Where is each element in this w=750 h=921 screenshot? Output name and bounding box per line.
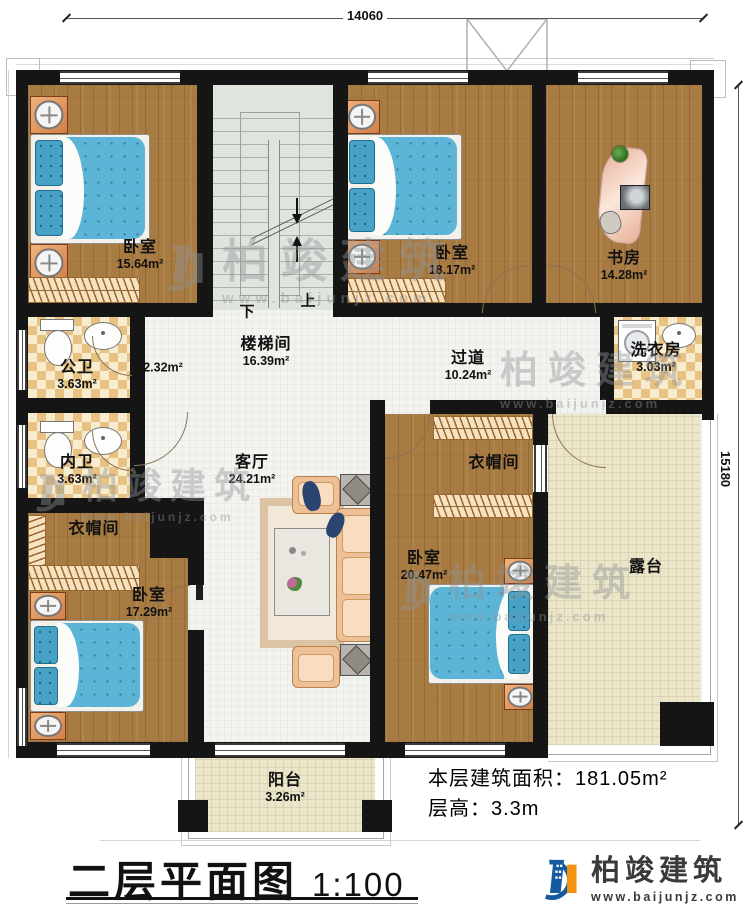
brand-name: 柏竣建筑 (591, 857, 739, 886)
lamp (34, 595, 62, 617)
sliding-door (215, 743, 345, 757)
room-name: 阳台 (265, 771, 305, 790)
lamp (348, 104, 376, 130)
room-label-lobby: 2.32m² (143, 361, 183, 376)
room-name: 客厅 (229, 453, 276, 472)
title-underline-thin (66, 903, 418, 904)
room-label-bedroom-bl: 卧室 17.29m² (126, 586, 173, 620)
wall (16, 398, 145, 413)
dimension-line-right (738, 85, 739, 825)
bed-mattress (430, 587, 504, 679)
room-name: 卧室 (126, 586, 173, 605)
pillow (508, 634, 530, 674)
lamp (34, 715, 62, 737)
wardrobe (433, 494, 533, 518)
wall (16, 303, 213, 317)
room-name: 露台 (629, 557, 663, 576)
decor (301, 551, 306, 556)
wall (188, 513, 204, 585)
cushion (298, 654, 334, 682)
floor-area-label: 本层建筑面积： (428, 768, 575, 790)
brand-logo-icon (536, 854, 584, 906)
room-area: 14.28m² (601, 268, 648, 283)
armchair (292, 646, 340, 688)
room-name: 卧室 (117, 238, 164, 257)
side-table (340, 474, 374, 506)
wall (702, 85, 714, 420)
room-area: 3.26m² (265, 790, 305, 805)
window (17, 330, 27, 390)
wardrobe (342, 278, 446, 303)
nightstand (504, 684, 536, 710)
room-label-bedroom-tm: 卧室 18.17m² (429, 244, 476, 278)
floor-height-label: 层高： (428, 798, 491, 820)
room-name: 卧室 (401, 549, 448, 568)
room-name: 内卫 (57, 453, 97, 472)
pillow (35, 140, 63, 186)
floor-height-text: 层高：3.3m (428, 792, 539, 821)
nightstand (30, 712, 66, 740)
floor-area-value: 181.05m² (575, 768, 668, 790)
room-name: 过道 (445, 349, 492, 368)
window (405, 743, 505, 757)
wardrobe (433, 416, 533, 440)
stair-arrow (296, 246, 298, 262)
wall (532, 85, 546, 317)
window (17, 688, 27, 746)
wall (430, 400, 533, 414)
room-label-public-bath: 公卫 3.63m² (57, 358, 97, 392)
room-label-cloakroom-right: 衣帽间 (468, 453, 519, 472)
dimension-width-label: 14060 (343, 8, 387, 23)
window (57, 743, 150, 757)
lamp (508, 687, 533, 708)
pillow (34, 667, 58, 705)
wardrobe (28, 277, 140, 303)
room-label-bedroom-tl: 卧室 15.64m² (117, 238, 164, 272)
room-name: 衣帽间 (468, 453, 519, 472)
room-area: 3.03m² (630, 360, 681, 375)
room-area: 17.29m² (126, 605, 173, 620)
side-table (340, 644, 374, 676)
stair-down-label: 下 (239, 301, 254, 322)
brand-logo: 柏竣建筑 www.baijunjz.com (536, 854, 739, 906)
window (368, 71, 468, 84)
dimension-height-label: 15180 (718, 447, 733, 491)
room-name: 衣帽间 (68, 519, 119, 538)
wall (606, 400, 714, 414)
window (17, 425, 27, 488)
room-name: 公卫 (57, 358, 97, 377)
wall (533, 492, 548, 758)
room-area: 20.47m² (401, 568, 448, 583)
brand-url: www.baijunjz.com (591, 890, 739, 904)
balcony-pillar (178, 800, 208, 832)
flowers (287, 577, 303, 591)
balcony-pillar (362, 800, 392, 832)
nightstand (504, 558, 536, 584)
wall (600, 317, 614, 400)
eave-line (16, 64, 714, 65)
room-label-corridor: 过道 10.24m² (445, 349, 492, 383)
floor-plan-canvas: 卧室 15.64m² 楼梯间 16.39m² 卧室 18.17m² 书房 14.… (0, 0, 750, 921)
floor-area-text: 本层建筑面积：181.05m² (428, 762, 668, 791)
stair-arrow-head (292, 236, 302, 246)
wall (333, 85, 348, 317)
pillar (660, 702, 714, 746)
wall (533, 400, 548, 445)
room-label-balcony: 阳台 3.26m² (265, 771, 305, 805)
room-label-private-bath: 内卫 3.63m² (57, 453, 97, 487)
room-label-living: 客厅 24.21m² (229, 453, 276, 487)
lamp (348, 244, 376, 270)
nightstand (30, 592, 66, 620)
room-label-study: 书房 14.28m² (601, 249, 648, 283)
room-area: 24.21m² (229, 472, 276, 487)
room-name: 卧室 (429, 244, 476, 263)
wall (548, 400, 556, 414)
room-name: 洗衣房 (630, 341, 681, 360)
decor (289, 547, 296, 554)
room-label-bedroom-br: 卧室 20.47m² (401, 549, 448, 583)
stair-up-label: 上 (300, 290, 315, 311)
wall (16, 498, 204, 513)
wall (16, 85, 28, 758)
room-area: 16.39m² (240, 354, 291, 369)
room-area: 10.24m² (445, 368, 492, 383)
computer-monitor (620, 185, 650, 210)
room-label-terrace: 露台 (629, 557, 663, 576)
wardrobe (28, 565, 140, 591)
eave-line (8, 70, 9, 758)
roof-hatch-marker (466, 18, 548, 72)
room-label-stairwell: 楼梯间 16.39m² (240, 335, 291, 369)
floor-height-value: 3.3m (491, 798, 539, 820)
room-name: 楼梯间 (240, 335, 291, 354)
room-name: 书房 (601, 249, 648, 268)
pillow (35, 190, 63, 236)
wall (370, 400, 385, 758)
nightstand (344, 240, 380, 274)
room-label-laundry: 洗衣房 3.03m² (630, 341, 681, 375)
room-area: 3.63m² (57, 377, 97, 392)
room-area: 15.64m² (117, 257, 164, 272)
pillow (34, 626, 58, 664)
coffee-table (274, 528, 330, 616)
stair-arrow-head (292, 214, 302, 224)
nightstand (30, 96, 68, 134)
plant (612, 146, 628, 162)
room-label-cloakroom-left: 衣帽间 (68, 519, 119, 538)
pillow (349, 140, 375, 184)
nightstand (344, 100, 380, 134)
eave-line (16, 58, 714, 59)
stair-arrow (296, 198, 298, 214)
title-underline (66, 897, 418, 900)
dimension-tick (699, 13, 708, 22)
wall (188, 630, 204, 758)
dimension-tick (734, 820, 743, 829)
wall (197, 85, 213, 317)
lamp (508, 561, 533, 582)
lamp (34, 100, 63, 129)
room-area: 18.17m² (429, 263, 476, 278)
window (60, 71, 180, 84)
window (534, 445, 547, 492)
lamp (34, 248, 63, 277)
pillow (349, 188, 375, 232)
room-area: 2.32m² (143, 361, 183, 376)
pillow (508, 591, 530, 631)
room-area: 3.63m² (57, 472, 97, 487)
window (578, 71, 668, 84)
column (150, 513, 188, 558)
